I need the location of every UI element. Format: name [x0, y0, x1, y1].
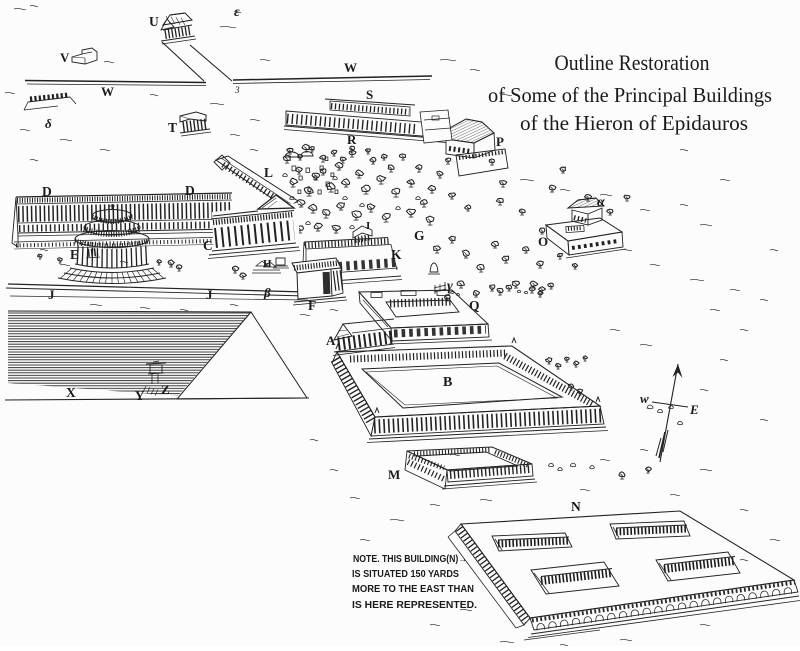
svg-text:E: E: [70, 247, 79, 262]
svg-text:Z: Z: [161, 382, 170, 397]
svg-text:F: F: [308, 298, 316, 313]
svg-text:N: N: [571, 499, 581, 514]
svg-text:S: S: [366, 87, 373, 102]
svg-text:W: W: [101, 84, 114, 99]
svg-text:W: W: [344, 60, 357, 75]
svg-text:J: J: [206, 287, 213, 302]
svg-text:L: L: [264, 165, 273, 180]
svg-text:IS SITUATED 150 YARDS: IS SITUATED 150 YARDS: [352, 569, 459, 580]
svg-text:I: I: [366, 220, 370, 232]
svg-text:B: B: [443, 375, 452, 390]
svg-text:D: D: [185, 183, 195, 198]
svg-text:Q: Q: [469, 298, 480, 313]
svg-text:R: R: [347, 132, 357, 147]
svg-text:O: O: [538, 234, 548, 249]
svg-text:w: w: [640, 391, 649, 406]
svg-text:T: T: [168, 120, 177, 135]
svg-text:MORE TO THE EAST THAN: MORE TO THE EAST THAN: [352, 584, 474, 595]
svg-text:J: J: [48, 287, 55, 302]
svg-text:of Some of the Principal Build: of Some of the Principal Buildings: [488, 83, 772, 107]
svg-text:V: V: [60, 50, 70, 65]
svg-text:H: H: [263, 258, 272, 270]
svg-text:G: G: [414, 228, 425, 243]
svg-text:A: A: [326, 333, 336, 348]
svg-text:NOTE. THIS BUILDING(N)→: NOTE. THIS BUILDING(N)→: [353, 554, 467, 565]
svg-text:of the Hieron of Epidauros: of the Hieron of Epidauros: [520, 111, 748, 135]
svg-text:3: 3: [234, 85, 240, 95]
svg-text:Outline Restoration: Outline Restoration: [555, 50, 710, 75]
svg-text:β: β: [263, 285, 271, 300]
svg-text:U: U: [149, 14, 159, 29]
svg-text:M: M: [388, 467, 400, 482]
svg-text:IS HERE REPRESENTED.: IS HERE REPRESENTED.: [352, 600, 477, 611]
svg-text:P: P: [496, 134, 504, 149]
svg-text:X: X: [66, 385, 76, 400]
svg-text:E: E: [689, 402, 699, 417]
svg-text:C: C: [203, 238, 213, 253]
svg-text:δ: δ: [45, 116, 52, 131]
svg-text:D: D: [42, 184, 52, 199]
svg-text:α: α: [597, 195, 605, 210]
svg-text:K: K: [391, 247, 402, 262]
